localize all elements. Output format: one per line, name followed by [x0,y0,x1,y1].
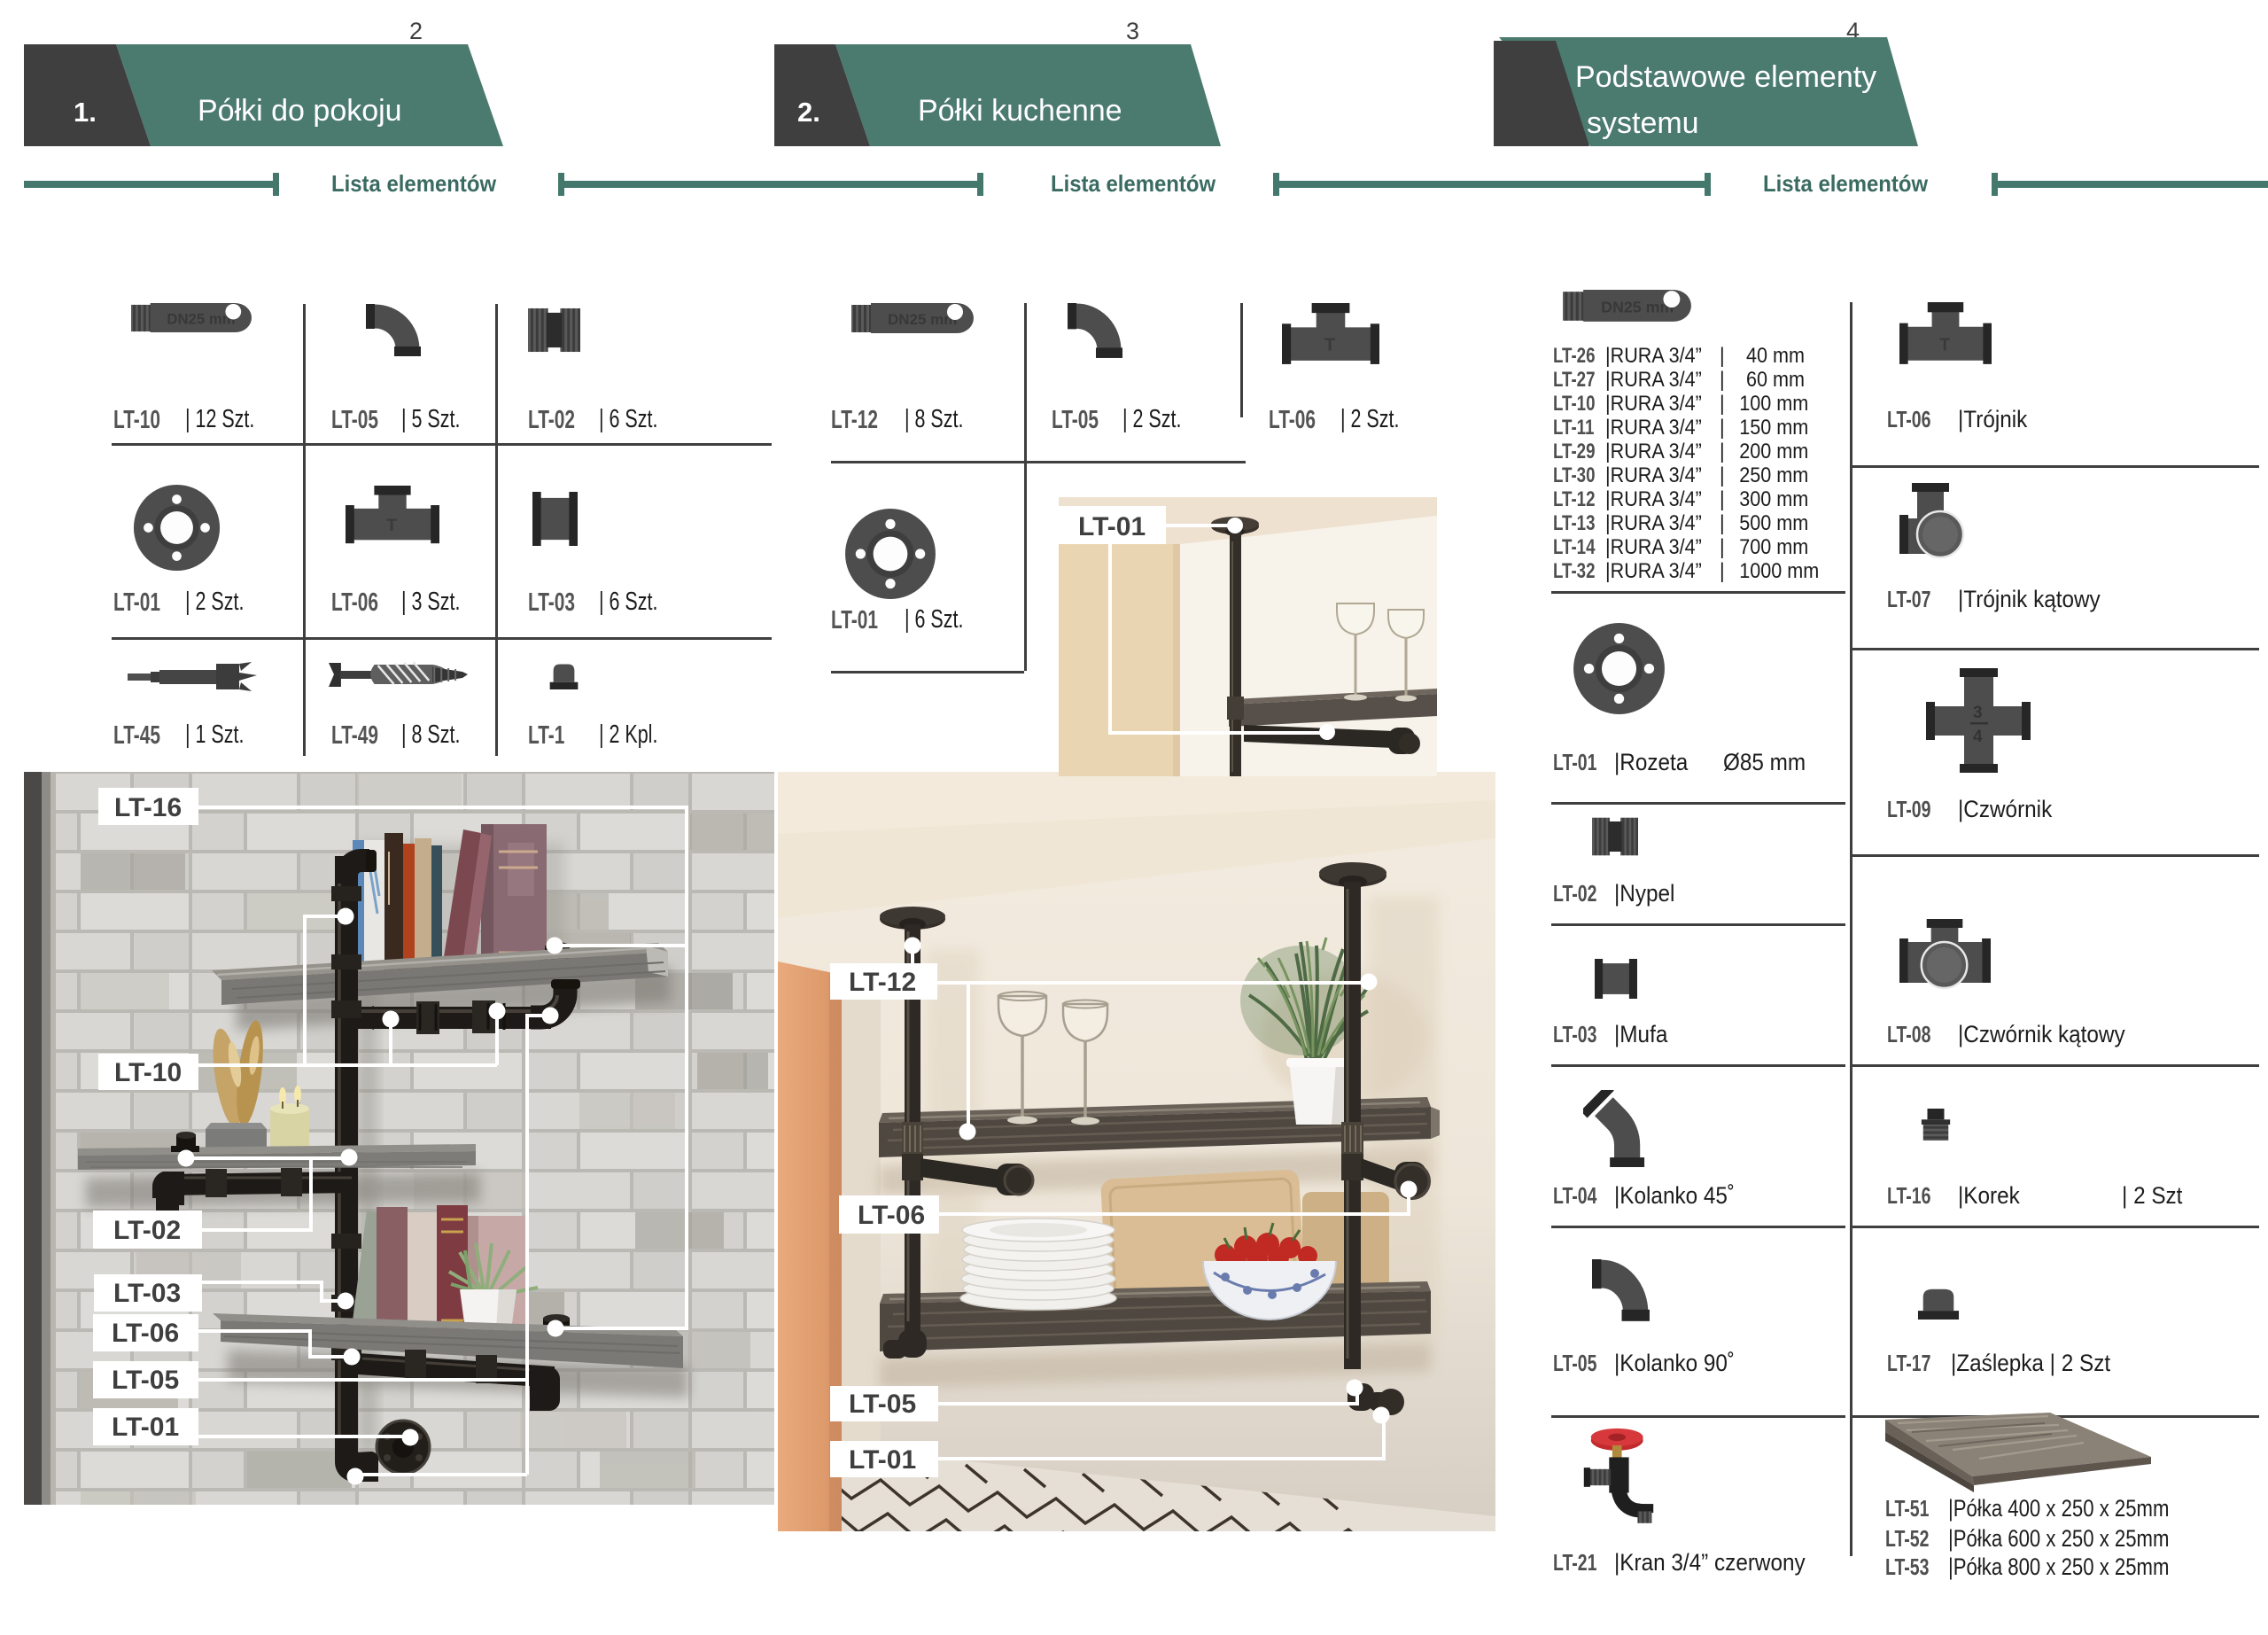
svg-text:LT-05: LT-05 [112,1366,179,1395]
svg-text:systemu: systemu [1587,106,1699,140]
svg-text:Półki kuchenne: Półki kuchenne [918,94,1122,128]
svg-text:Podstawowe elementy: Podstawowe elementy [1575,60,1876,94]
svg-text:Półki do pokoju: Półki do pokoju [198,94,402,128]
svg-text:LT-05: LT-05 [849,1390,916,1419]
svg-text:LT-06: LT-06 [858,1201,925,1230]
svg-text:LT-02: LT-02 [113,1216,181,1245]
svg-text:LT-01: LT-01 [112,1413,179,1442]
svg-text:LT-03: LT-03 [113,1279,181,1308]
svg-text:LT-10: LT-10 [114,1058,182,1087]
svg-text:LT-12: LT-12 [849,968,916,997]
svg-text:2.: 2. [797,97,820,128]
svg-text:LT-01: LT-01 [849,1445,916,1475]
svg-text:LT-01: LT-01 [1078,512,1146,541]
svg-text:LT-06: LT-06 [112,1319,179,1348]
svg-text:1.: 1. [74,97,97,128]
svg-text:LT-16: LT-16 [114,793,182,822]
